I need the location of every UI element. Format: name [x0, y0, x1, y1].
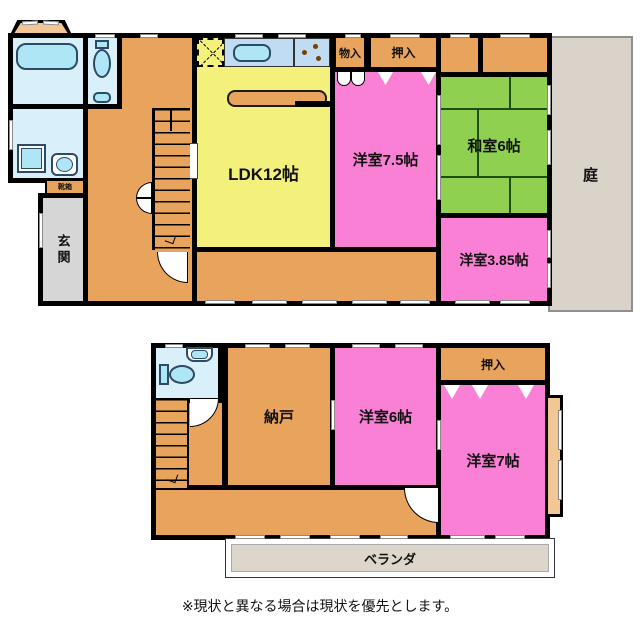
- window-mark: [280, 535, 310, 539]
- window-mark: [345, 34, 361, 38]
- window-mark: [547, 85, 551, 115]
- floorplan-canvas: 庭 LDK12帖 物入 押入 洋室7.5帖 和室6帖: [0, 0, 640, 640]
- entrance-genkan: 玄関: [38, 193, 88, 306]
- window-mark: [140, 34, 158, 38]
- window-mark: [302, 300, 337, 304]
- garden-area: 庭: [548, 36, 633, 312]
- window-mark: [455, 300, 490, 304]
- engawa-corridor-1f: [192, 247, 446, 306]
- washing-machine-drum: [21, 148, 42, 169]
- window-mark: [235, 34, 263, 38]
- closet-oshiire-2f-label: 押入: [481, 356, 505, 373]
- shoji-door-mark: [437, 155, 441, 200]
- staircase-1f-center-line: [170, 108, 172, 131]
- washbasin-bowl-1f: [56, 157, 73, 172]
- window-mark: [165, 344, 183, 348]
- veranda: ベランダ: [225, 538, 555, 578]
- entrance-label: 玄関: [54, 234, 73, 266]
- window-mark: [495, 535, 525, 539]
- garden-label: 庭: [583, 164, 598, 185]
- window-mark: [547, 230, 551, 258]
- window-mark: [205, 300, 235, 304]
- tatami-line: [441, 108, 547, 110]
- closet-monoire-label: 物入: [339, 45, 361, 61]
- window-mark: [547, 130, 551, 165]
- door-scallop: [351, 72, 365, 86]
- window-mark: [437, 420, 441, 450]
- room-western-7: 洋室7帖: [436, 380, 550, 540]
- window-mark: [400, 300, 430, 304]
- window-mark: [43, 21, 59, 26]
- closet-oshiire-2f: 押入: [436, 343, 550, 385]
- window-mark: [450, 34, 470, 38]
- room-japanese-6: 和室6帖: [436, 72, 552, 218]
- window-mark: [352, 344, 380, 348]
- disclaimer-note: ※現状と異なる場合は現状を優先とします。: [0, 596, 640, 616]
- room-western-3-85-label: 洋室3.85帖: [459, 250, 528, 270]
- window-mark: [547, 263, 551, 288]
- toilet-bowl-2f: [169, 365, 195, 384]
- hallway-2f-south: [151, 485, 446, 540]
- room-western-7-5: 洋室7.5帖: [330, 67, 441, 252]
- veranda-label: ベランダ: [364, 549, 416, 568]
- kitchen-divider: [293, 38, 295, 67]
- room-western-7-label: 洋室7帖: [466, 450, 519, 471]
- room-nando: 納戸: [223, 343, 335, 490]
- room-nando-label: 納戸: [264, 406, 294, 427]
- tatami-line: [509, 77, 511, 108]
- window-mark: [500, 34, 530, 38]
- window-mark: [9, 120, 13, 150]
- disclaimer-text: ※現状と異なる場合は現状を優先とします。: [182, 598, 458, 614]
- stove-burner-dot: [313, 44, 318, 49]
- window-mark: [39, 213, 43, 248]
- veranda-floor: ベランダ: [231, 544, 549, 572]
- window-mark: [352, 300, 387, 304]
- tatami-line: [509, 176, 511, 213]
- window-mark: [235, 535, 265, 539]
- window-mark: [395, 344, 423, 348]
- room-western-3-85: 洋室3.85帖: [436, 213, 552, 306]
- room-western-6-label: 洋室6帖: [359, 406, 412, 427]
- stove-burner-dot: [302, 50, 307, 55]
- toilet-tank-2f: [159, 364, 169, 385]
- window-mark: [330, 535, 360, 539]
- window-mark: [380, 535, 408, 539]
- window-mark: [245, 344, 270, 348]
- window-mark: [95, 34, 115, 38]
- window-mark: [278, 34, 306, 38]
- window-mark: [500, 300, 530, 304]
- closet-oshiire-1f-label: 押入: [391, 44, 415, 61]
- shoji-door-mark: [437, 95, 441, 145]
- room-western-7-5-label: 洋室7.5帖: [353, 149, 419, 170]
- window-mark: [285, 344, 310, 348]
- tatami-line: [441, 176, 547, 178]
- room-western-6: 洋室6帖: [330, 343, 441, 490]
- window-mark: [558, 460, 562, 500]
- washbasin-bowl-2f: [191, 350, 208, 359]
- window-mark: [22, 21, 38, 26]
- toilet-sink-1f: [93, 92, 111, 103]
- kitchen-sink: [233, 44, 271, 62]
- ldk-counter-wall-stub: [295, 101, 335, 107]
- room-ldk-label: LDK12帖: [228, 160, 299, 185]
- bathtub: [16, 43, 78, 70]
- window-mark: [450, 535, 485, 539]
- door-scallop: [337, 72, 351, 86]
- closet-washitsu-right: [478, 33, 552, 77]
- window-mark: [331, 400, 335, 430]
- stove-burner-dot: [316, 56, 321, 61]
- toilet-bowl-1f: [93, 49, 111, 78]
- window-mark: [558, 410, 562, 450]
- ldk-door-slab: [189, 143, 198, 179]
- toilet-tank-1f: [95, 40, 109, 49]
- window-mark: [390, 34, 420, 38]
- closet-washitsu-left: [436, 33, 483, 77]
- shoebox-label: 靴箱: [58, 182, 72, 192]
- window-mark: [252, 300, 287, 304]
- room-japanese-6-label: 和室6帖: [467, 135, 520, 156]
- refrigerator-space: [197, 38, 224, 67]
